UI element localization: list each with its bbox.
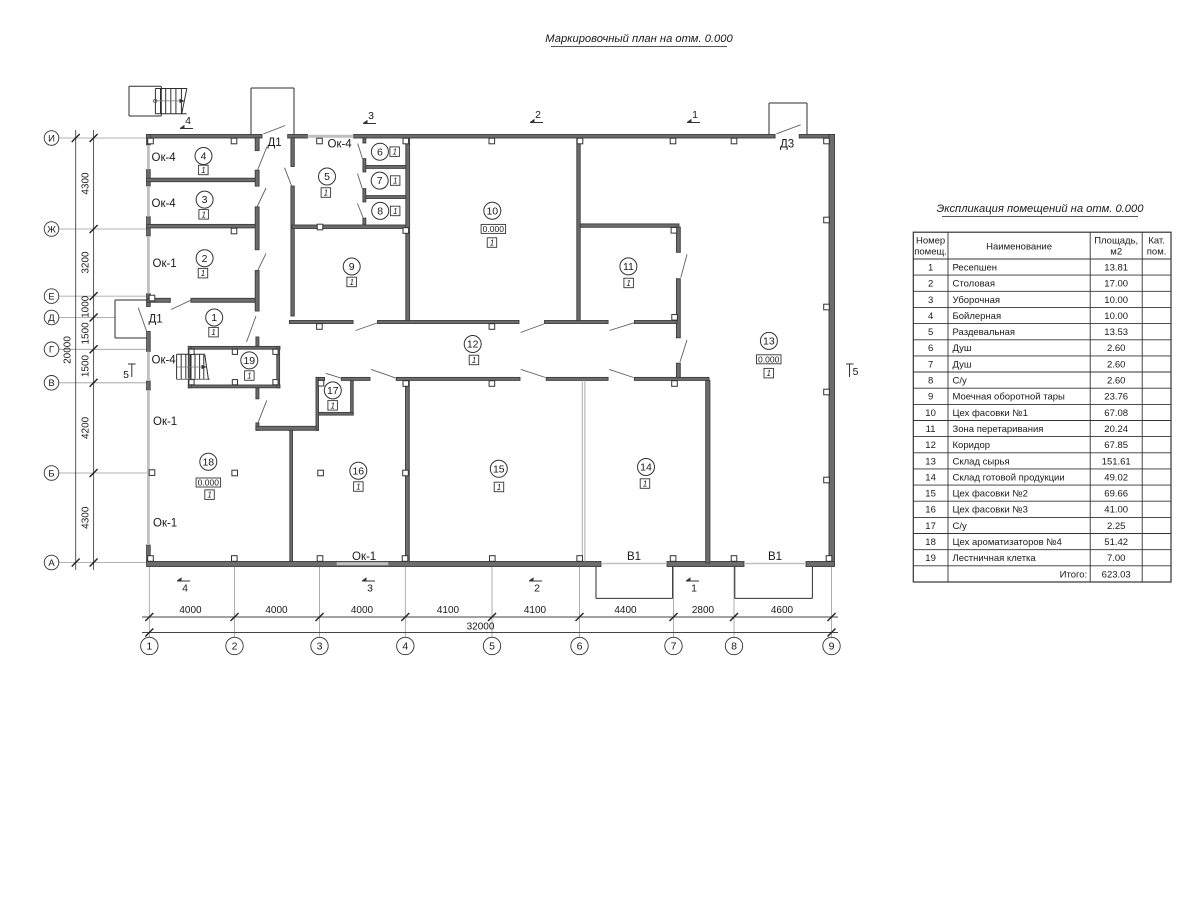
svg-text:3: 3 <box>317 641 323 653</box>
svg-text:4400: 4400 <box>614 605 637 616</box>
svg-text:0.000: 0.000 <box>198 478 220 488</box>
svg-text:Ок-1: Ок-1 <box>352 551 376 563</box>
svg-text:7: 7 <box>671 641 677 653</box>
svg-text:17.00: 17.00 <box>1104 279 1128 290</box>
svg-text:20.24: 20.24 <box>1104 424 1128 435</box>
svg-text:Итого:: Итого: <box>1060 569 1088 580</box>
svg-text:1: 1 <box>497 483 501 492</box>
svg-text:7.00: 7.00 <box>1107 553 1126 564</box>
svg-text:Ок-4: Ок-4 <box>328 139 353 151</box>
svg-text:1: 1 <box>201 210 205 219</box>
svg-text:1: 1 <box>472 356 476 365</box>
svg-text:Моечная оборотной тары: Моечная оборотной тары <box>953 392 1066 403</box>
svg-text:16: 16 <box>925 505 936 516</box>
svg-text:13: 13 <box>763 336 775 348</box>
svg-text:6: 6 <box>377 146 383 158</box>
svg-text:4300: 4300 <box>81 172 92 195</box>
svg-text:0.000: 0.000 <box>758 355 780 365</box>
svg-text:1: 1 <box>146 641 152 653</box>
svg-text:1: 1 <box>643 480 647 489</box>
svg-text:1: 1 <box>766 369 770 378</box>
svg-text:4600: 4600 <box>771 605 794 616</box>
svg-text:4: 4 <box>402 641 408 653</box>
svg-text:151.61: 151.61 <box>1102 456 1131 467</box>
svg-text:1: 1 <box>211 328 215 337</box>
svg-text:4: 4 <box>185 115 191 127</box>
svg-text:12: 12 <box>467 339 479 351</box>
svg-text:3: 3 <box>367 583 373 595</box>
svg-text:Коридор: Коридор <box>953 440 991 451</box>
svg-text:9: 9 <box>829 641 835 653</box>
svg-text:19: 19 <box>925 553 936 564</box>
svg-text:17: 17 <box>327 385 339 397</box>
svg-text:И: И <box>48 133 55 144</box>
svg-text:4100: 4100 <box>524 605 547 616</box>
svg-text:4000: 4000 <box>265 605 288 616</box>
svg-text:2: 2 <box>928 279 933 290</box>
svg-text:18: 18 <box>925 537 936 548</box>
svg-text:3: 3 <box>368 110 374 122</box>
svg-text:Цех фасовки №3: Цех фасовки №3 <box>953 505 1028 516</box>
svg-text:51.42: 51.42 <box>1104 537 1128 548</box>
svg-text:С/у: С/у <box>953 521 968 532</box>
svg-text:5: 5 <box>324 171 330 183</box>
svg-text:1: 1 <box>201 166 205 175</box>
svg-text:2.25: 2.25 <box>1107 521 1126 532</box>
svg-text:Уборочная: Уборочная <box>953 295 1001 306</box>
svg-text:Склад готовой продукции: Склад готовой продукции <box>953 472 1065 483</box>
svg-text:9: 9 <box>349 261 355 273</box>
svg-text:2800: 2800 <box>692 605 715 616</box>
svg-text:Экспликация помещений на отм.: Экспликация помещений на отм. 0.000 <box>937 203 1145 215</box>
svg-text:11: 11 <box>926 424 936 435</box>
svg-text:Д: Д <box>48 313 55 324</box>
svg-text:10.00: 10.00 <box>1104 311 1128 322</box>
svg-text:Номер: Номер <box>916 236 945 247</box>
svg-text:13: 13 <box>925 456 936 467</box>
svg-text:С/у: С/у <box>953 376 968 387</box>
svg-text:Лестничная клетка: Лестничная клетка <box>953 553 1037 564</box>
svg-text:2: 2 <box>232 641 238 653</box>
svg-text:19: 19 <box>243 355 255 367</box>
svg-text:м2: м2 <box>1110 247 1122 258</box>
svg-text:4200: 4200 <box>81 416 92 439</box>
svg-text:1: 1 <box>691 583 697 595</box>
svg-text:14: 14 <box>640 462 652 474</box>
svg-text:23.76: 23.76 <box>1104 392 1128 403</box>
svg-text:1: 1 <box>211 312 217 324</box>
svg-text:4000: 4000 <box>179 605 202 616</box>
svg-text:Раздевальная: Раздевальная <box>953 327 1016 338</box>
svg-text:1: 1 <box>324 189 328 198</box>
svg-text:1: 1 <box>330 401 334 410</box>
svg-text:2.60: 2.60 <box>1107 376 1126 387</box>
svg-text:1: 1 <box>207 491 211 500</box>
svg-text:1000: 1000 <box>81 295 92 318</box>
svg-text:13.81: 13.81 <box>1104 263 1128 274</box>
svg-text:2.60: 2.60 <box>1107 359 1126 370</box>
svg-text:1500: 1500 <box>81 354 92 377</box>
svg-text:помещ.: помещ. <box>914 247 947 258</box>
svg-text:1: 1 <box>626 279 630 288</box>
svg-text:Г: Г <box>49 345 54 356</box>
svg-text:4300: 4300 <box>81 506 92 529</box>
svg-text:А: А <box>48 558 55 569</box>
svg-text:1: 1 <box>490 239 494 248</box>
svg-text:Ж: Ж <box>47 224 56 235</box>
svg-text:7: 7 <box>928 359 933 370</box>
svg-text:11: 11 <box>623 261 634 273</box>
svg-text:18: 18 <box>202 456 214 468</box>
svg-text:4000: 4000 <box>351 605 374 616</box>
svg-text:1: 1 <box>393 207 397 216</box>
svg-text:Цех фасовки №1: Цех фасовки №1 <box>953 408 1028 419</box>
svg-text:Д1: Д1 <box>149 314 163 326</box>
svg-text:10: 10 <box>486 205 498 217</box>
svg-text:Зона перетаривания: Зона перетаривания <box>953 424 1044 435</box>
svg-text:Ок-1: Ок-1 <box>153 416 177 428</box>
svg-text:Ок-4: Ок-4 <box>152 152 177 164</box>
svg-text:Площадь,: Площадь, <box>1094 236 1138 247</box>
svg-text:Б: Б <box>48 468 54 479</box>
svg-text:3: 3 <box>202 194 208 206</box>
svg-text:6: 6 <box>577 641 583 653</box>
svg-text:7: 7 <box>377 175 383 187</box>
svg-text:В1: В1 <box>768 551 782 563</box>
svg-text:8: 8 <box>377 206 383 218</box>
svg-text:1: 1 <box>692 109 698 121</box>
svg-text:1: 1 <box>201 269 205 278</box>
svg-text:Кат.: Кат. <box>1148 236 1165 247</box>
svg-text:4100: 4100 <box>437 605 460 616</box>
svg-text:Душ: Душ <box>953 359 972 370</box>
svg-text:2: 2 <box>535 109 541 121</box>
svg-text:4: 4 <box>928 311 933 322</box>
svg-text:10.00: 10.00 <box>1104 295 1128 306</box>
svg-text:2: 2 <box>534 583 540 595</box>
svg-text:1: 1 <box>928 263 933 274</box>
svg-text:1: 1 <box>392 148 396 157</box>
svg-text:3: 3 <box>928 295 933 306</box>
svg-text:67.85: 67.85 <box>1104 440 1128 451</box>
svg-text:10: 10 <box>925 408 936 419</box>
svg-text:1: 1 <box>349 278 353 287</box>
svg-text:В: В <box>48 378 54 389</box>
svg-text:69.66: 69.66 <box>1104 489 1128 500</box>
svg-text:623.03: 623.03 <box>1102 569 1131 580</box>
svg-text:Бойлерная: Бойлерная <box>953 311 1002 322</box>
svg-text:1: 1 <box>247 372 251 381</box>
svg-text:8: 8 <box>928 376 933 387</box>
svg-text:Маркировочный план на отм. 0.0: Маркировочный план на отм. 0.000 <box>545 33 733 45</box>
svg-text:15: 15 <box>493 463 505 475</box>
svg-text:20000: 20000 <box>63 336 74 364</box>
svg-text:Цех фасовки №2: Цех фасовки №2 <box>953 489 1028 500</box>
svg-text:Наименование: Наименование <box>986 242 1052 253</box>
svg-text:Ок-1: Ок-1 <box>153 518 177 530</box>
svg-text:9: 9 <box>928 392 933 403</box>
svg-text:6: 6 <box>928 343 933 354</box>
svg-text:Склад сырья: Склад сырья <box>953 456 1010 467</box>
svg-text:49.02: 49.02 <box>1104 472 1128 483</box>
svg-text:41.00: 41.00 <box>1104 505 1128 516</box>
svg-text:32000: 32000 <box>467 622 495 633</box>
svg-text:Д1: Д1 <box>268 137 282 149</box>
svg-text:16: 16 <box>352 465 364 477</box>
svg-text:1: 1 <box>393 177 397 186</box>
svg-text:2.60: 2.60 <box>1107 343 1126 354</box>
svg-text:5: 5 <box>928 327 933 338</box>
svg-text:1500: 1500 <box>81 322 92 345</box>
svg-text:Е: Е <box>48 292 54 303</box>
svg-text:5: 5 <box>489 641 495 653</box>
svg-text:Столовая: Столовая <box>953 279 995 290</box>
svg-text:Душ: Душ <box>953 343 972 354</box>
svg-text:13.53: 13.53 <box>1104 327 1128 338</box>
svg-text:67.08: 67.08 <box>1104 408 1128 419</box>
svg-text:В1: В1 <box>627 551 641 563</box>
svg-text:17: 17 <box>925 521 936 532</box>
svg-text:4: 4 <box>201 151 207 163</box>
svg-text:0.000: 0.000 <box>483 224 505 234</box>
svg-text:2: 2 <box>202 253 208 265</box>
svg-text:4: 4 <box>182 583 188 595</box>
svg-text:8: 8 <box>731 641 737 653</box>
svg-text:3200: 3200 <box>81 251 92 274</box>
svg-text:12: 12 <box>925 440 936 451</box>
svg-text:1: 1 <box>356 483 360 492</box>
svg-text:15: 15 <box>925 489 936 500</box>
svg-text:14: 14 <box>925 472 936 483</box>
svg-text:Цех ароматизаторов №4: Цех ароматизаторов №4 <box>953 537 1062 548</box>
svg-text:Ок-4: Ок-4 <box>152 355 177 367</box>
svg-text:Д3: Д3 <box>780 139 794 151</box>
svg-text:Ок-1: Ок-1 <box>153 258 177 270</box>
svg-text:Ок-4: Ок-4 <box>152 198 177 210</box>
svg-text:5: 5 <box>853 366 859 378</box>
svg-text:пом.: пом. <box>1147 247 1167 258</box>
svg-text:Ресепшен: Ресепшен <box>953 263 998 274</box>
svg-text:5: 5 <box>123 369 129 381</box>
